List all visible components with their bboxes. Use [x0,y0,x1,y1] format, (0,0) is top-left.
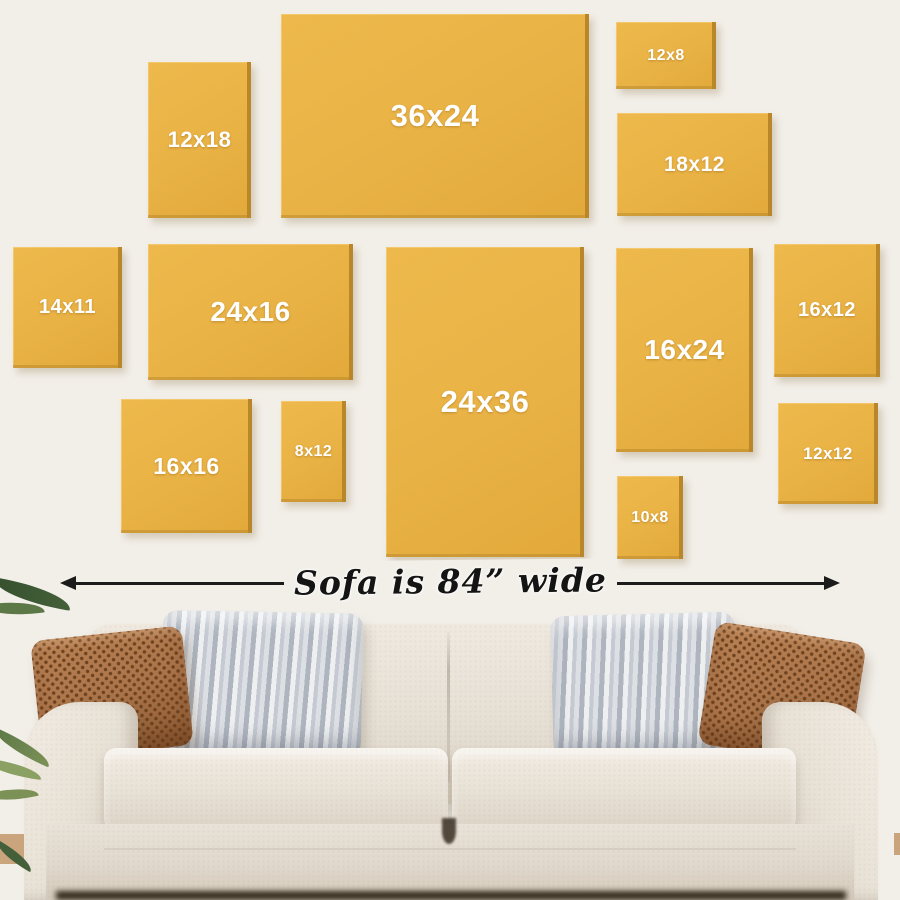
frame-16x16: 16x16 [121,399,252,533]
frame-12x12: 12x12 [778,403,878,504]
sofa-base-seam [104,848,796,850]
frame-24x36: 24x36 [386,247,584,557]
frame-size-label: 14x11 [39,296,96,319]
frame-size-label: 24x36 [441,384,530,420]
frame-size-label: 16x24 [644,334,724,366]
frame-8x12: 8x12 [281,401,346,502]
sofa-seat-cushion-right [452,748,796,834]
frame-10x8: 10x8 [617,476,683,559]
frame-size-label: 8x12 [295,443,333,461]
frame-12x8: 12x8 [616,22,716,89]
frame-size-label: 10x8 [631,509,669,527]
frame-size-label: 12x8 [647,47,685,65]
dimension-label-wrap: Sofa is 84” wide [0,560,900,606]
frame-size-label: 16x12 [798,299,856,322]
frame-size-label: 12x18 [168,127,232,153]
frame-size-label: 16x16 [153,453,219,480]
frame-16x24: 16x24 [616,248,753,452]
floor-patch-right [894,833,900,855]
sofa-base-crease [442,818,456,844]
wall-art-size-guide: 12x1836x2412x818x1214x1124x1624x3616x241… [0,0,900,900]
frame-size-label: 12x12 [803,444,853,464]
floor-shadow [56,891,846,900]
frame-size-label: 18x12 [664,153,725,177]
frame-24x16: 24x16 [148,244,353,380]
frame-18x12: 18x12 [617,113,772,216]
frame-12x18: 12x18 [148,62,251,218]
frame-36x24: 36x24 [281,14,589,218]
sofa-seat-cushion-left [104,748,448,834]
frame-16x12: 16x12 [774,244,880,377]
sofa-width-label: Sofa is 84” wide [283,558,616,605]
frame-size-label: 24x16 [210,296,290,328]
frame-14x11: 14x11 [13,247,122,368]
frame-size-label: 36x24 [391,98,480,134]
